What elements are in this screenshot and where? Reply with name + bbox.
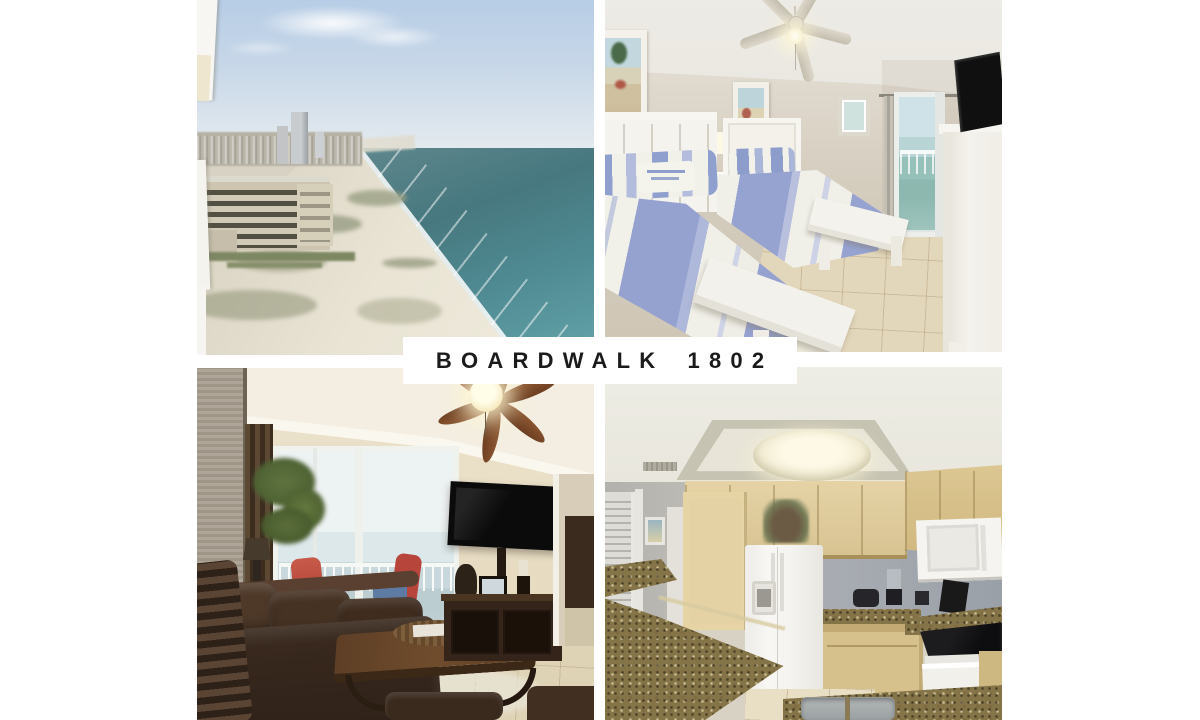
fridge-handle (780, 553, 784, 611)
fan-pull-chain (795, 44, 796, 70)
dune-scrub (357, 298, 442, 324)
condo-wing-windows (300, 192, 330, 242)
photo-aerial-beach (197, 0, 594, 355)
blender-base (886, 589, 902, 605)
floor-lamp-shade (243, 538, 271, 560)
tv (954, 52, 1002, 133)
microwave-door (926, 524, 980, 572)
balcony-balusters (900, 154, 938, 174)
ottoman (385, 692, 503, 720)
console-glass-door (451, 610, 499, 654)
ceiling-dome-light (753, 429, 871, 481)
doorway-furniture (565, 516, 594, 608)
dune-scrub (382, 258, 437, 268)
console-glass-door (503, 610, 551, 654)
doorway-floor (565, 608, 594, 646)
bed2-leg (891, 236, 902, 266)
art-accent (615, 80, 626, 89)
bed2-leg (819, 244, 830, 270)
balcony-plant (261, 508, 313, 544)
cabinet-drawer-line (827, 645, 917, 647)
fan-light (787, 28, 803, 44)
tv-glare (454, 487, 557, 544)
media-console-top (441, 594, 565, 601)
fridge-door-seam (777, 547, 778, 695)
sink-divider (845, 697, 850, 720)
pillow-text (647, 170, 685, 173)
photo-bedroom (605, 0, 1002, 352)
candle-lamp (519, 560, 528, 576)
toaster (853, 589, 879, 607)
pillow-text (651, 177, 679, 180)
dresser (943, 132, 1002, 352)
collage-canvas: BOARDWALK 1802 (0, 0, 1200, 720)
knife-block (939, 579, 969, 614)
cloud (225, 40, 295, 56)
small-appliance (915, 591, 929, 605)
ice-dispenser-slot (757, 589, 771, 607)
dresser-foot (949, 342, 965, 352)
lawn (227, 262, 322, 268)
ottoman-corner (527, 686, 594, 720)
blender-jar (887, 569, 901, 589)
condo-tower (315, 132, 324, 158)
fridge-plant (763, 499, 809, 543)
cloud (347, 26, 442, 48)
lawn (205, 252, 355, 261)
foreground-balcony-edge (197, 55, 211, 102)
ceiling-vent (643, 462, 677, 471)
photo-kitchen (605, 367, 1002, 720)
fan-pull-chain (485, 412, 486, 434)
photo-living-room (197, 368, 594, 720)
condo-tower (277, 126, 288, 164)
title-banner: BOARDWALK 1802 (403, 337, 797, 384)
beach-art (844, 102, 864, 130)
property-title: BOARDWALK 1802 (427, 348, 774, 374)
foreground-balcony-edge (197, 286, 206, 355)
condo-tower (291, 112, 308, 164)
dune-scrub (347, 190, 407, 206)
art-palm (611, 42, 627, 64)
wall-art-small (645, 517, 665, 545)
